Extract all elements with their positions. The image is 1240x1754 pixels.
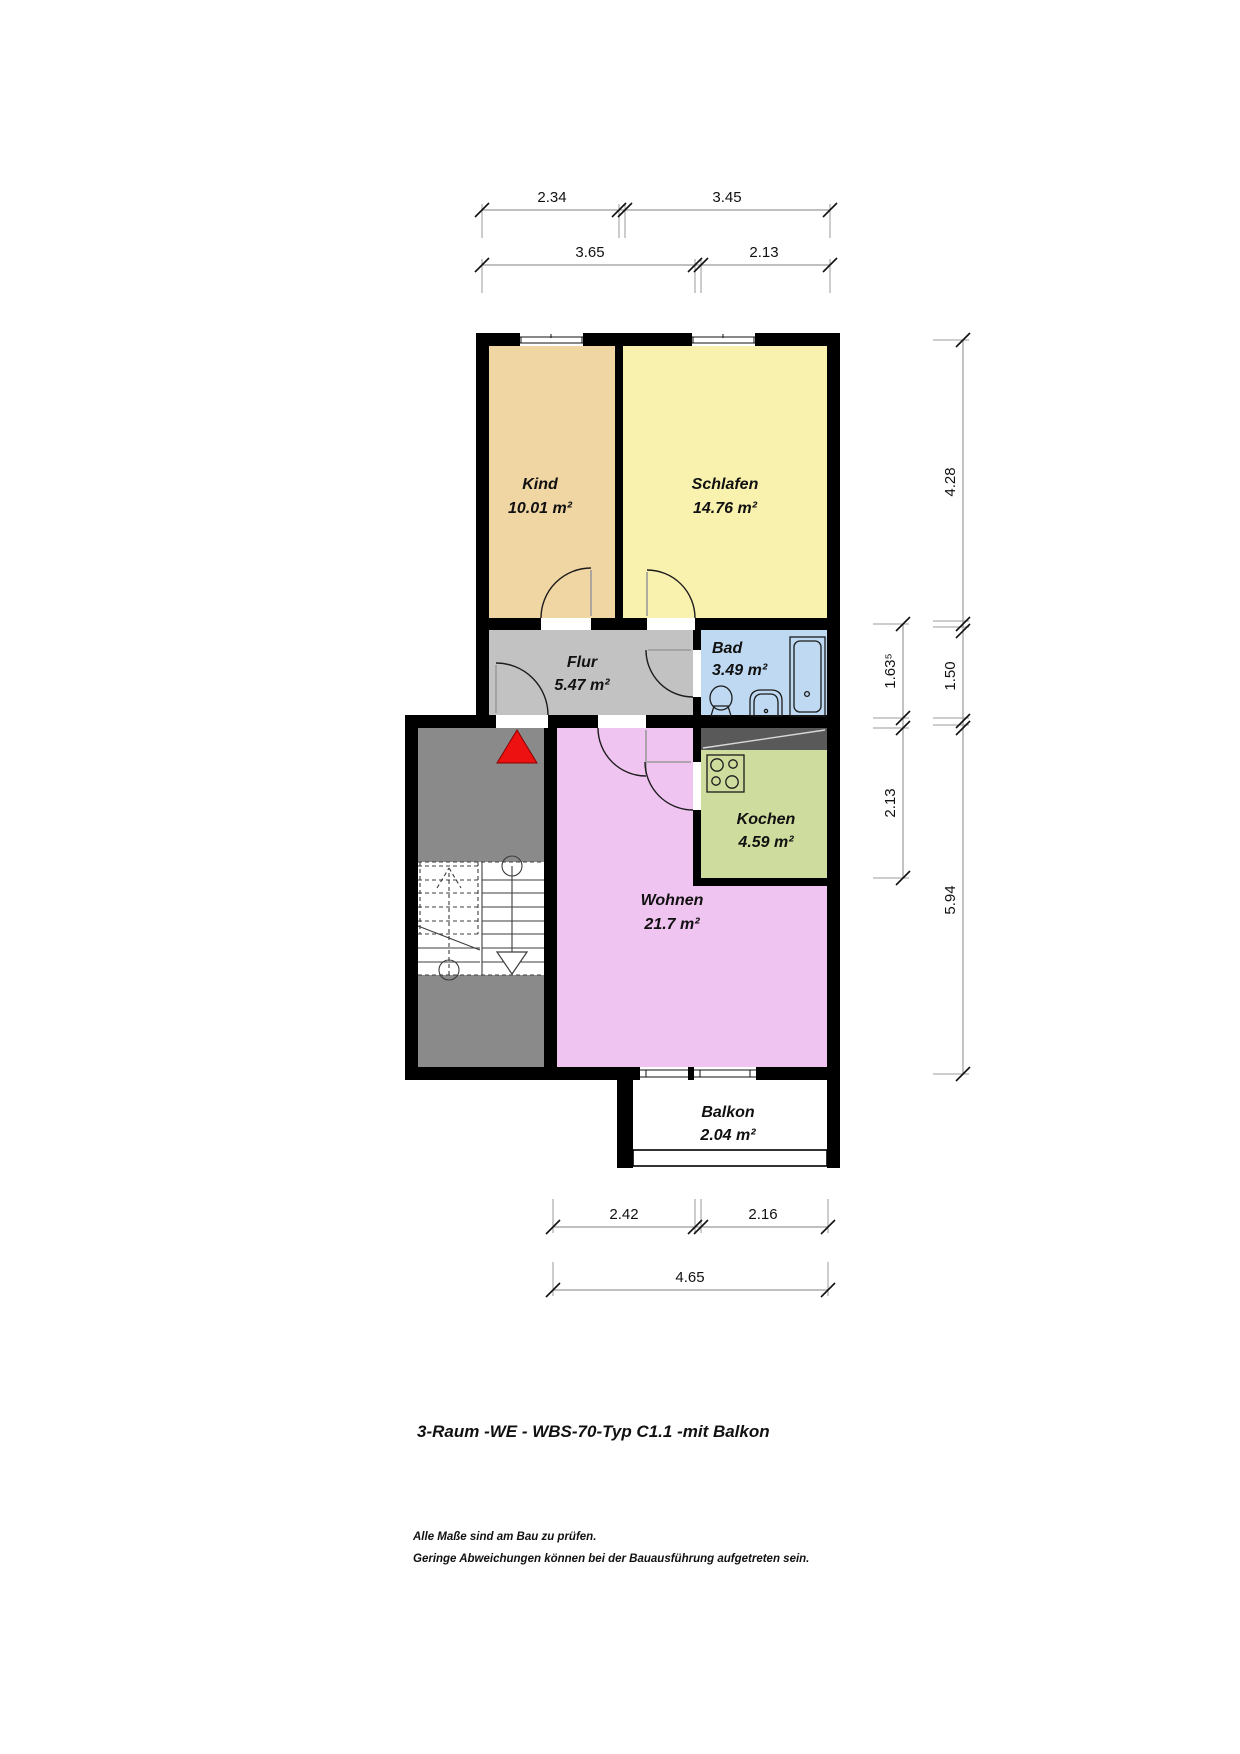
right-dimension-chain-outer: 4.28 1.50 5.94 bbox=[933, 333, 970, 1081]
plan-title: 3-Raum -WE - WBS-70-Typ C1.1 -mit Balkon bbox=[417, 1422, 770, 1441]
balcony-window bbox=[694, 1067, 756, 1080]
bottom-dimension-chain-2: 4.65 bbox=[546, 1262, 835, 1297]
top-dimension-chain-1: 2.34 3.45 bbox=[475, 189, 837, 238]
bad-label: Bad bbox=[712, 640, 743, 657]
kochen-area: 4.59 m² bbox=[737, 834, 794, 851]
right-dimension-chain-inner: 1.63⁵ 2.13 bbox=[873, 617, 910, 885]
note-line-1: Alle Maße sind am Bau zu prüfen. bbox=[412, 1531, 596, 1543]
dim-top-1a: 2.34 bbox=[537, 189, 566, 206]
balkon-label: Balkon bbox=[701, 1104, 755, 1121]
dim-right-outer-1: 4.28 bbox=[942, 467, 959, 496]
stairwell bbox=[418, 862, 544, 975]
room-flur bbox=[489, 630, 693, 715]
dim-right-outer-2: 1.50 bbox=[942, 661, 959, 690]
kind-area: 10.01 m² bbox=[508, 500, 573, 517]
balcony-railing bbox=[633, 1150, 827, 1166]
flur-label: Flur bbox=[567, 654, 598, 671]
dim-top-2a: 3.65 bbox=[575, 244, 604, 261]
dim-right-inner-1: 1.63⁵ bbox=[882, 653, 899, 688]
dim-bottom-2: 4.65 bbox=[675, 1269, 704, 1286]
schlafen-area: 14.76 m² bbox=[693, 500, 758, 517]
stair-landing-bottom bbox=[418, 975, 544, 1067]
kochen-label: Kochen bbox=[737, 811, 796, 828]
floorplan-page: Kind 10.01 m² Schlafen 14.76 m² Flur 5.4… bbox=[0, 0, 1240, 1754]
kind-label: Kind bbox=[522, 476, 559, 493]
balkon-area: 2.04 m² bbox=[699, 1127, 756, 1144]
flur-area: 5.47 m² bbox=[554, 677, 610, 694]
window-schlafen bbox=[692, 333, 755, 346]
wohnen-label: Wohnen bbox=[641, 892, 704, 909]
bad-area: 3.49 m² bbox=[712, 662, 768, 679]
schlafen-label: Schlafen bbox=[692, 476, 759, 493]
floorplan-drawing: Kind 10.01 m² Schlafen 14.76 m² Flur 5.4… bbox=[0, 0, 1240, 1754]
installation-shaft bbox=[701, 728, 827, 750]
dim-right-outer-3: 5.94 bbox=[942, 885, 959, 914]
note-line-2: Geringe Abweichungen können bei der Baua… bbox=[413, 1553, 809, 1565]
balcony-door bbox=[640, 1067, 688, 1080]
dim-right-inner-2: 2.13 bbox=[882, 788, 899, 817]
bottom-dimension-chain-1: 2.42 2.16 bbox=[546, 1199, 835, 1234]
top-dimension-chain-2: 3.65 2.13 bbox=[475, 244, 837, 293]
dim-bottom-1a: 2.42 bbox=[609, 1206, 638, 1223]
window-kind bbox=[520, 333, 583, 346]
dim-bottom-1b: 2.16 bbox=[748, 1206, 777, 1223]
dim-top-1b: 3.45 bbox=[712, 189, 741, 206]
dim-top-2b: 2.13 bbox=[749, 244, 778, 261]
wohnen-area: 21.7 m² bbox=[643, 916, 700, 933]
